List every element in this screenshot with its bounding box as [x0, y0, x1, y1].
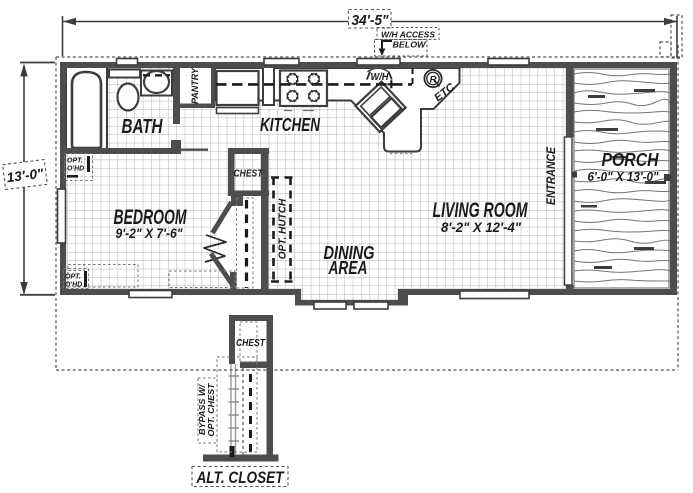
svg-text:R: R [430, 75, 437, 86]
svg-text:ALT. CLOSET: ALT. CLOSET [196, 468, 285, 487]
svg-text:W/H: W/H [371, 72, 390, 83]
svg-text:OPT. CHEST: OPT. CHEST [206, 383, 216, 437]
svg-text:ENTRANCE: ENTRANCE [546, 147, 558, 205]
svg-text:W/H ACCESS: W/H ACCESS [381, 31, 436, 40]
svg-text:BELOW: BELOW [393, 41, 427, 50]
svg-text:34'-5": 34'-5" [352, 13, 390, 29]
svg-text:OPT.: OPT. [65, 274, 81, 281]
svg-text:KITCHEN: KITCHEN [260, 115, 321, 135]
svg-text:PORCH: PORCH [602, 150, 660, 170]
svg-text:9'-2" X 7'-6": 9'-2" X 7'-6" [116, 226, 184, 241]
svg-text:OPT. HUTCH: OPT. HUTCH [278, 198, 289, 259]
svg-text:BATH: BATH [122, 116, 163, 138]
svg-text:O'HD: O'HD [65, 282, 82, 289]
svg-text:CHEST: CHEST [236, 337, 266, 349]
svg-text:OPT.: OPT. [67, 158, 83, 165]
svg-text:PANTRY: PANTRY [190, 66, 201, 104]
svg-text:AREA: AREA [328, 258, 368, 278]
svg-text:8'-2" X 12'-4": 8'-2" X 12'-4" [441, 220, 522, 235]
svg-text:LIVING ROOM: LIVING ROOM [433, 199, 528, 222]
svg-text:6'-0" X 13'-0": 6'-0" X 13'-0" [588, 170, 660, 184]
svg-text:O'HD: O'HD [67, 166, 84, 173]
svg-text:CHEST: CHEST [234, 168, 264, 180]
